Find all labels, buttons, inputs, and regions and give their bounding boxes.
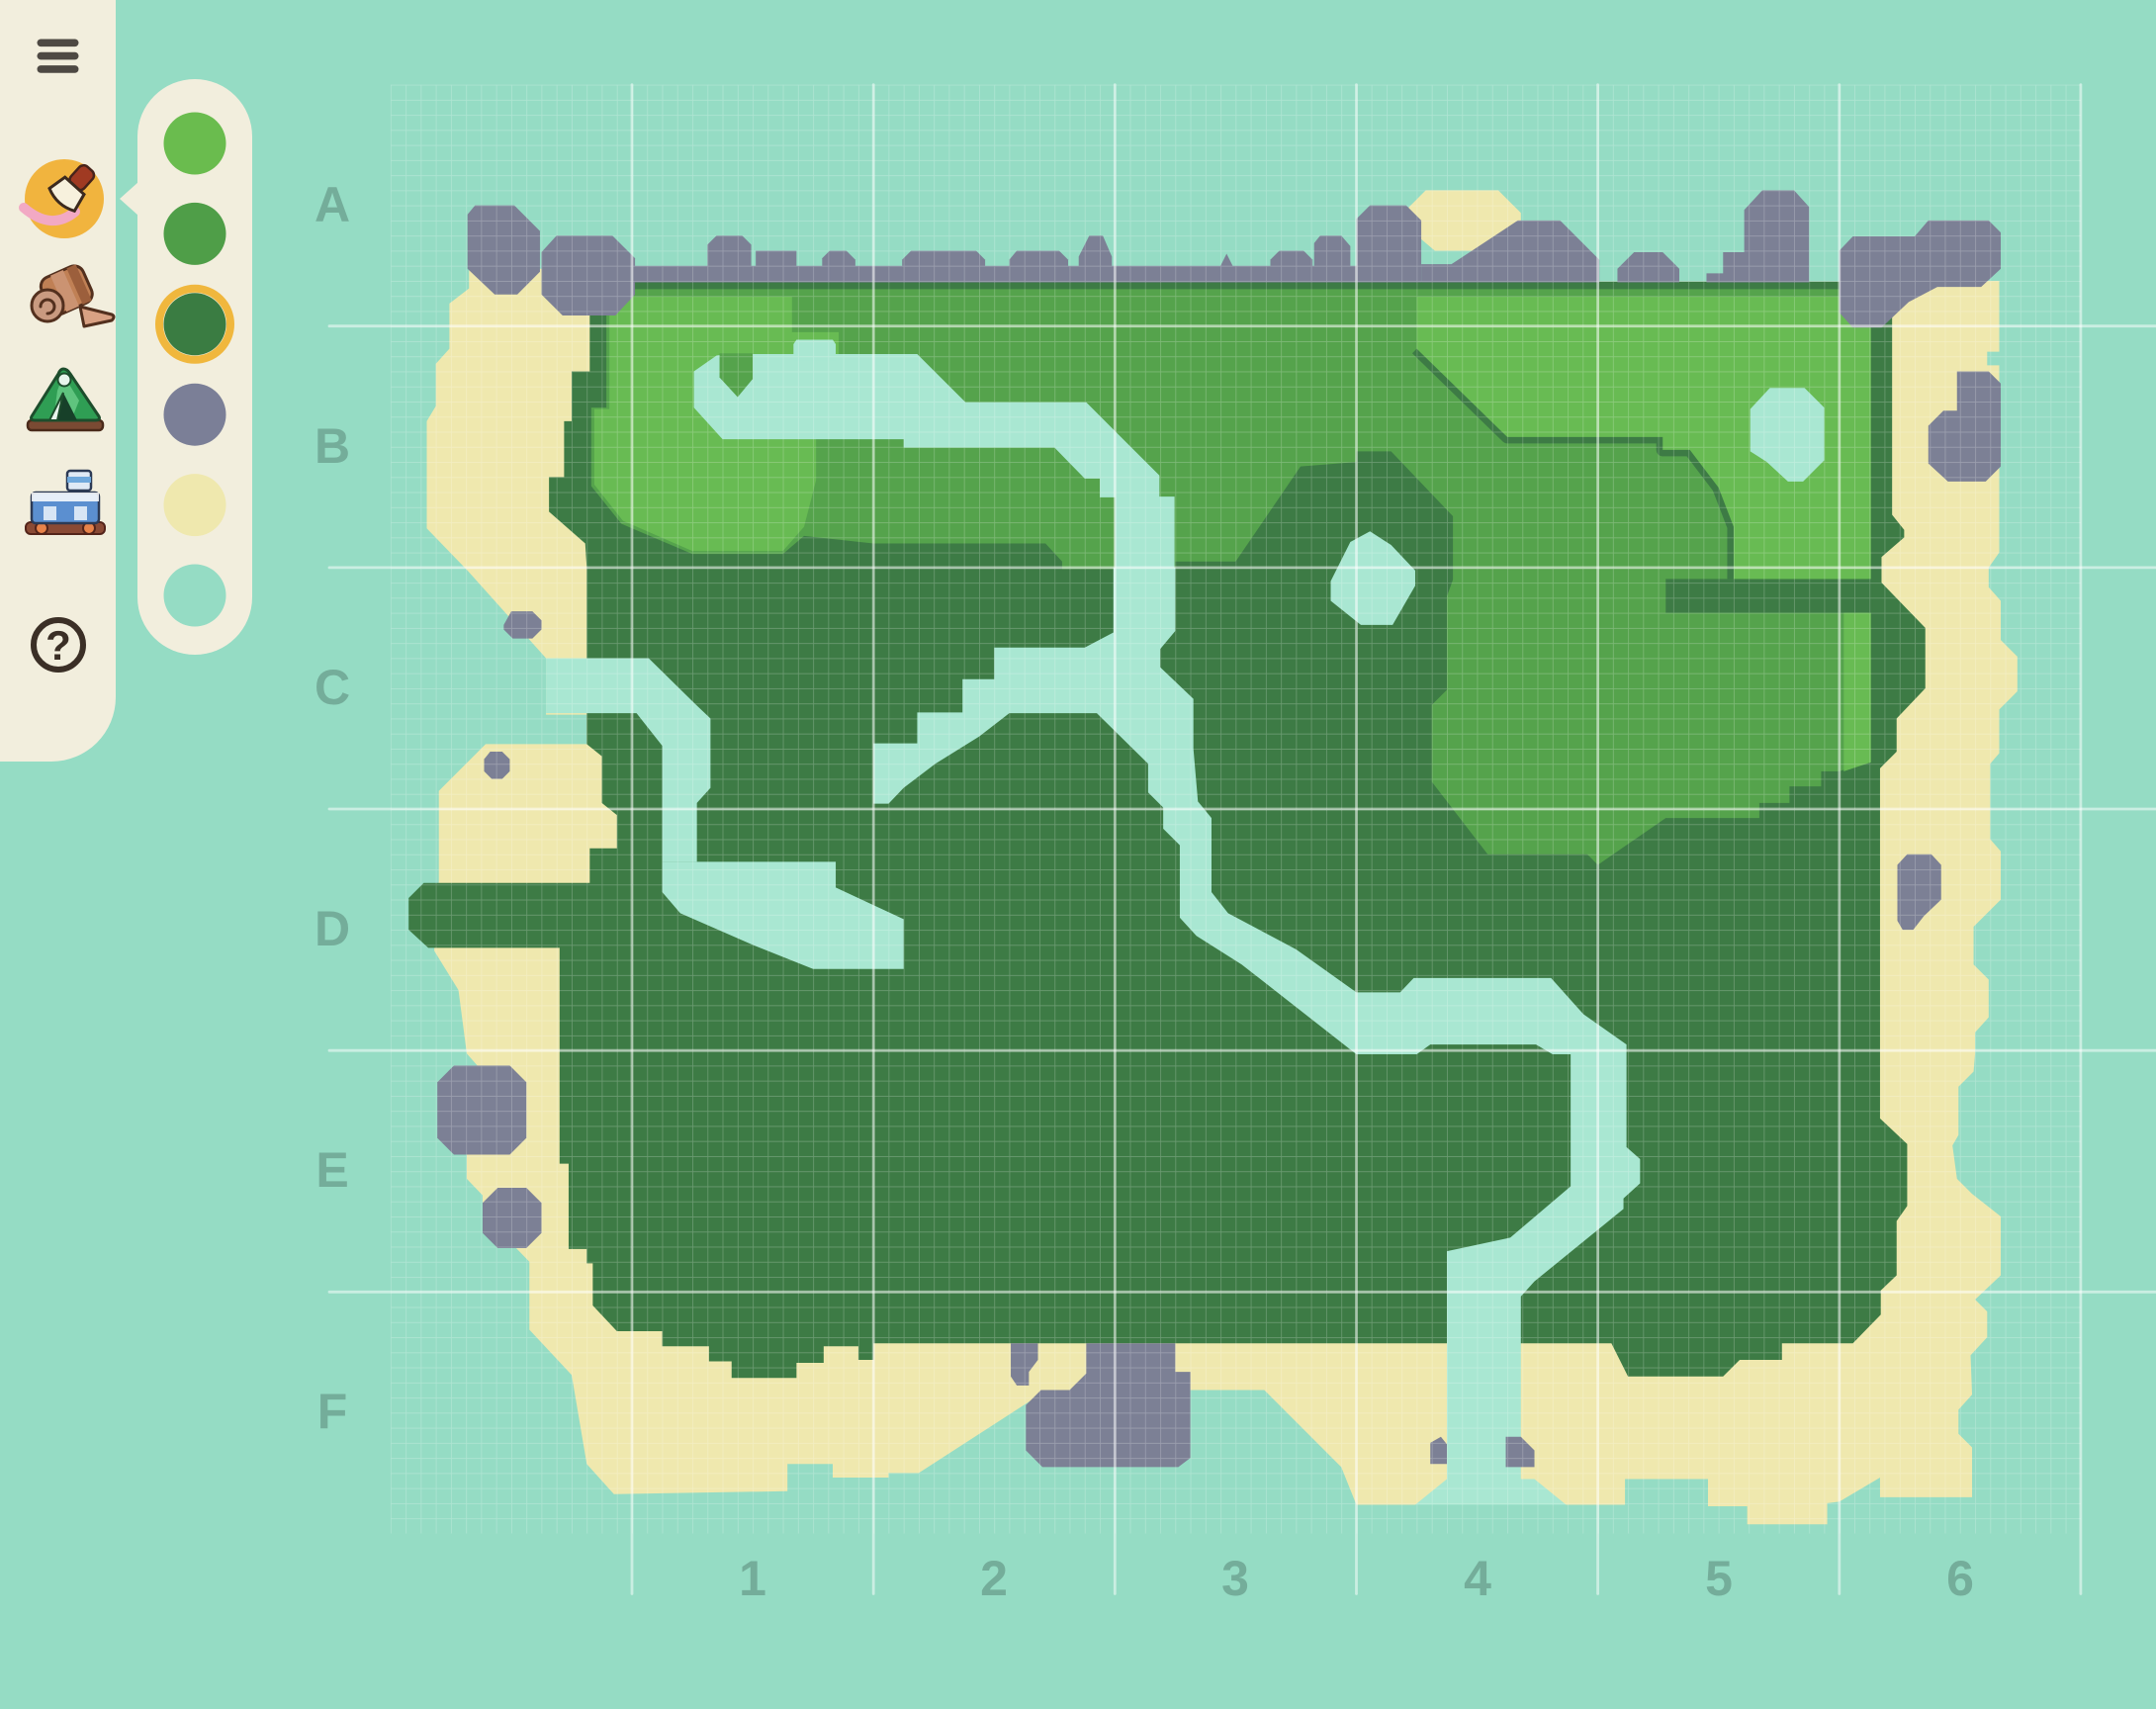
svg-text:6: 6 (1946, 1551, 1974, 1606)
svg-text:E: E (315, 1142, 348, 1198)
svg-text:2: 2 (980, 1551, 1008, 1606)
svg-text:3: 3 (1221, 1551, 1249, 1606)
svg-text:5: 5 (1705, 1551, 1733, 1606)
svg-text:1: 1 (739, 1551, 766, 1606)
svg-text:F: F (317, 1384, 348, 1439)
svg-text:B: B (314, 418, 350, 474)
svg-text:C: C (314, 660, 350, 715)
svg-text:?: ? (45, 622, 71, 669)
svg-text:4: 4 (1464, 1551, 1491, 1606)
svg-text:A: A (314, 177, 350, 232)
svg-text:D: D (314, 901, 350, 956)
